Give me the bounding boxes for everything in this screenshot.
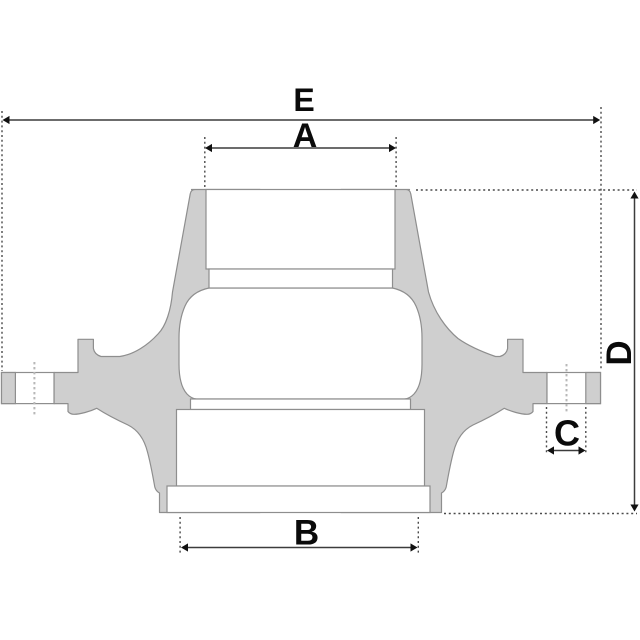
svg-text:E: E — [293, 82, 314, 118]
svg-text:A: A — [293, 117, 318, 155]
svg-text:B: B — [294, 514, 319, 553]
svg-text:D: D — [600, 340, 639, 365]
svg-text:C: C — [554, 413, 580, 454]
